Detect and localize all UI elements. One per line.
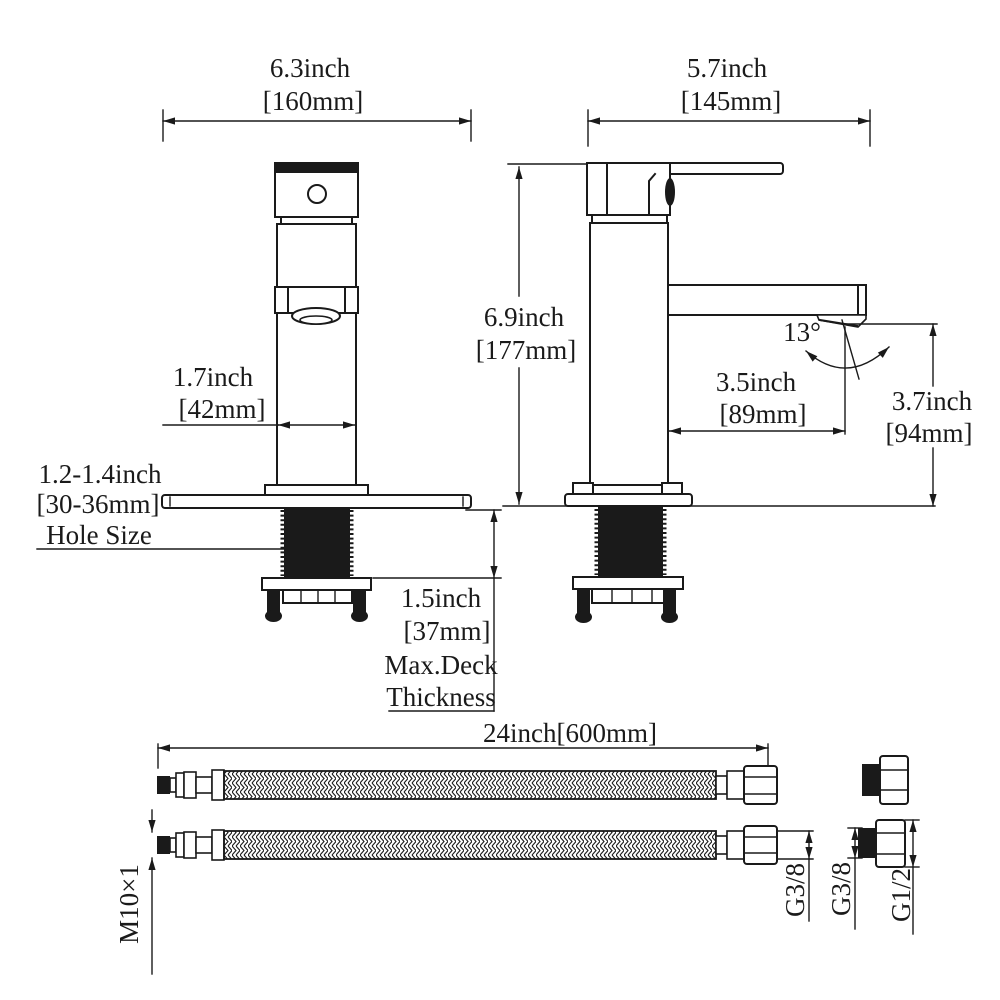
hose-2-nut	[744, 826, 777, 864]
front-threaded-shank	[283, 508, 351, 578]
adapter-fitting-1	[862, 756, 908, 804]
hose-length-dimension	[158, 744, 768, 768]
hole-size-text-label: Hole Size	[46, 520, 152, 550]
side-depth-mm-label: [145mm]	[681, 86, 782, 116]
side-height-inch-label: 6.9inch	[484, 302, 565, 332]
hose-length-label: 24inch[600mm]	[483, 718, 657, 748]
front-aerator-inner	[300, 316, 332, 324]
front-handle-joint	[281, 217, 352, 224]
hose-1-braid	[224, 771, 716, 799]
front-handle-button	[308, 185, 326, 203]
spout-angle-label: 13°	[783, 317, 821, 347]
supply-hose-2	[157, 826, 777, 864]
hole-size-range-mm-label: [30-36mm]	[37, 489, 160, 519]
drawing-root: 6.3inch [160mm]	[37, 53, 973, 974]
hose-section: 24inch[600mm]	[114, 718, 919, 974]
front-view: 6.3inch [160mm]	[37, 53, 501, 712]
side-body	[590, 223, 668, 485]
side-mounting-nut	[573, 577, 683, 589]
front-body-width-inch-label: 1.7inch	[173, 362, 254, 392]
front-deck-plate	[162, 495, 471, 508]
side-base-plate	[565, 494, 692, 506]
spout-reach-mm-label: [89mm]	[720, 399, 807, 429]
supply-hose-1	[157, 766, 777, 804]
hole-size-range-inch-label: 1.2-1.4inch	[39, 459, 162, 489]
spout-height-mm-label: [94mm]	[886, 418, 973, 448]
side-handle-base	[587, 163, 670, 215]
side-threaded-shank	[597, 506, 664, 577]
front-faucet-outline	[162, 163, 471, 622]
front-body-width-mm-label: [42mm]	[179, 394, 266, 424]
adapter-fitting-2	[858, 820, 905, 867]
deck-thickness-mm-label: [37mm]	[404, 616, 491, 646]
hose-nut-thread-label: G3/8	[780, 863, 810, 917]
deck-thickness-note1-label: Max.Deck	[384, 650, 498, 680]
side-view: 5.7inch [145mm] 6.9inch [177mm]	[476, 53, 973, 623]
front-body	[277, 224, 356, 485]
adapter-inlet-thread-label: G3/8	[826, 862, 856, 916]
spout-reach-inch-label: 3.5inch	[716, 367, 797, 397]
side-height-mm-label: [177mm]	[476, 335, 577, 365]
hose-2-braid	[224, 831, 716, 859]
front-width-mm-label: [160mm]	[263, 86, 364, 116]
front-mounting-nut	[262, 578, 371, 590]
side-spout	[668, 285, 866, 315]
side-height-dimension	[508, 164, 586, 504]
front-width-inch-label: 6.3inch	[270, 53, 351, 83]
spout-height-inch-label: 3.7inch	[892, 386, 973, 416]
inlet-thread-label: M10×1	[114, 864, 144, 944]
diagram-svg: 6.3inch [160mm]	[0, 0, 1000, 1000]
deck-thickness-inch-label: 1.5inch	[401, 583, 482, 613]
front-handle-top-bar	[275, 163, 358, 173]
side-depth-inch-label: 5.7inch	[687, 53, 768, 83]
faucet-dimension-diagram: 6.3inch [160mm]	[0, 0, 1000, 1000]
adapter-outlet-thread-label: G1/2	[886, 868, 916, 922]
front-base-flange	[265, 485, 368, 495]
deck-thickness-note2-label: Thickness	[386, 682, 495, 712]
hose-1-nut	[744, 766, 777, 804]
side-handle-detail	[665, 178, 675, 206]
side-handle-joint	[592, 215, 667, 223]
